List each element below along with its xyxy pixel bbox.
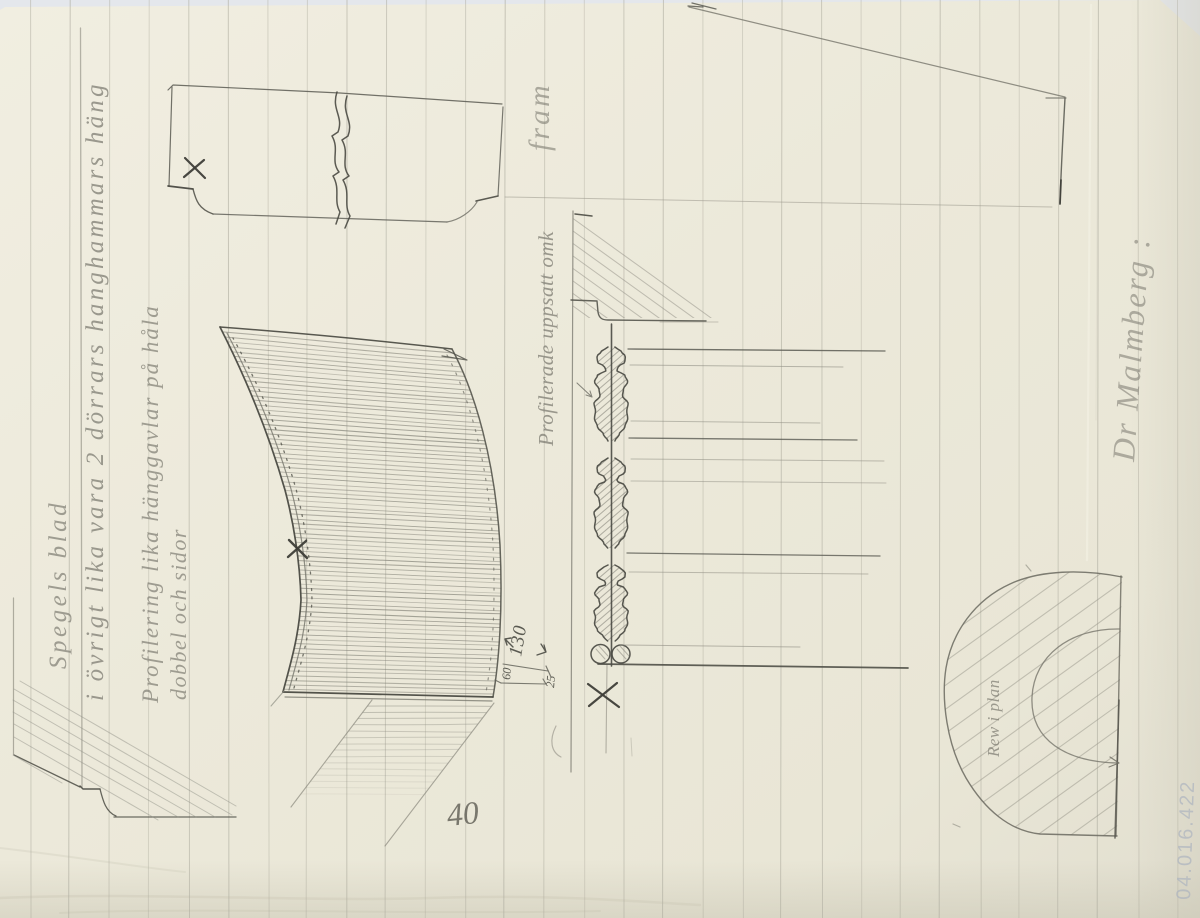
svg-text:40: 40 [445,794,481,833]
svg-text:Profilerade uppsatt omk: Profilerade uppsatt omk [534,231,558,447]
svg-text:Spegels blad: Spegels blad [45,500,72,669]
svg-text:60: 60 [499,667,514,680]
svg-text:fram: fram [523,82,556,151]
svg-text:i övrigt lika vara 2 dörrars h: i övrigt lika vara 2 dörrars hanghammars… [82,81,109,701]
svg-text:Profilering lika hänggavlar på: Profilering lika hänggavlar på håla [138,304,163,704]
svg-text:dobbel och sidor: dobbel och sidor [166,528,191,700]
svg-text:Rew i plan: Rew i plan [984,679,1003,758]
svg-text:04.016.422: 04.016.422 [1173,779,1199,900]
svg-text:25: 25 [543,675,558,688]
